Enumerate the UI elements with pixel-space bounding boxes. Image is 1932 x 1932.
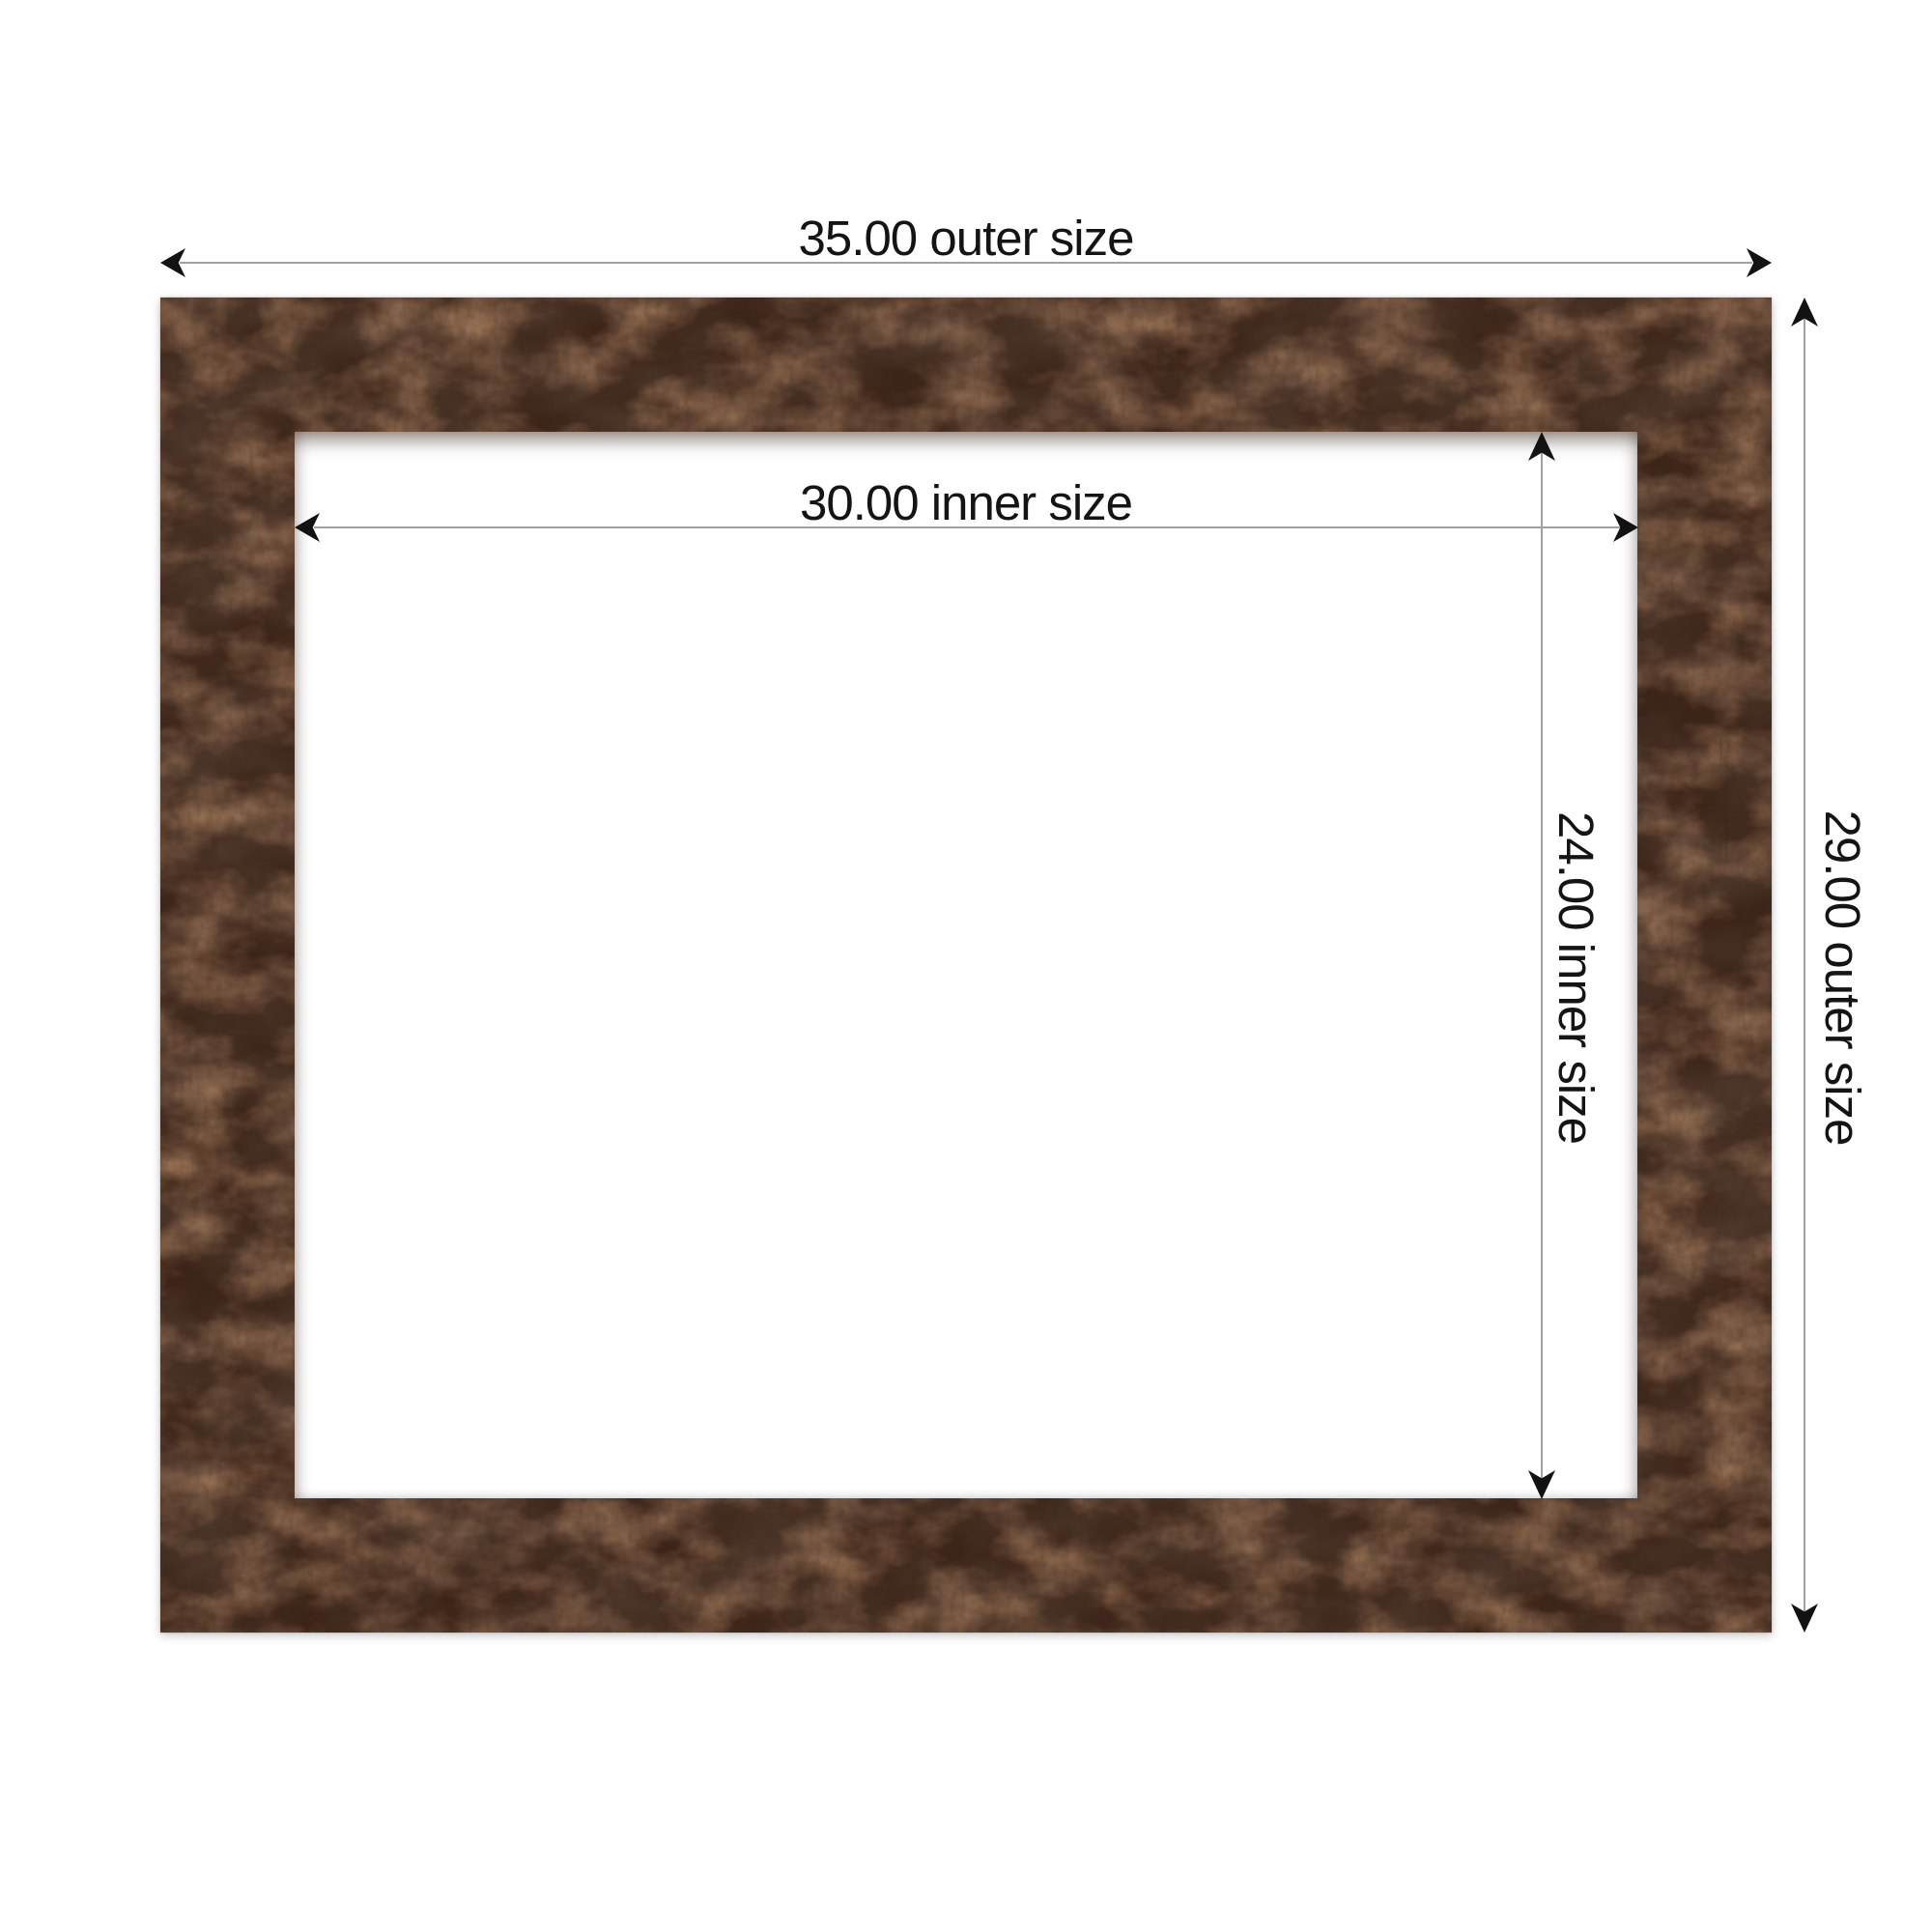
outer-height-line (1804, 317, 1805, 1613)
inner-height-line (1541, 451, 1543, 1481)
frame-dimension-diagram: 35.00 outer size 30.00 inner size 24.00 … (0, 0, 1932, 1932)
outer-width-line (180, 262, 1752, 264)
outer-width-label: 35.00 outer size (799, 213, 1134, 263)
inner-width-label: 30.00 inner size (800, 478, 1132, 527)
inner-height-label: 24.00 inner size (1551, 811, 1601, 1144)
inner-width-line (314, 526, 1620, 528)
frame-opening (295, 432, 1637, 1498)
outer-height-label: 29.00 outer size (1818, 810, 1867, 1146)
